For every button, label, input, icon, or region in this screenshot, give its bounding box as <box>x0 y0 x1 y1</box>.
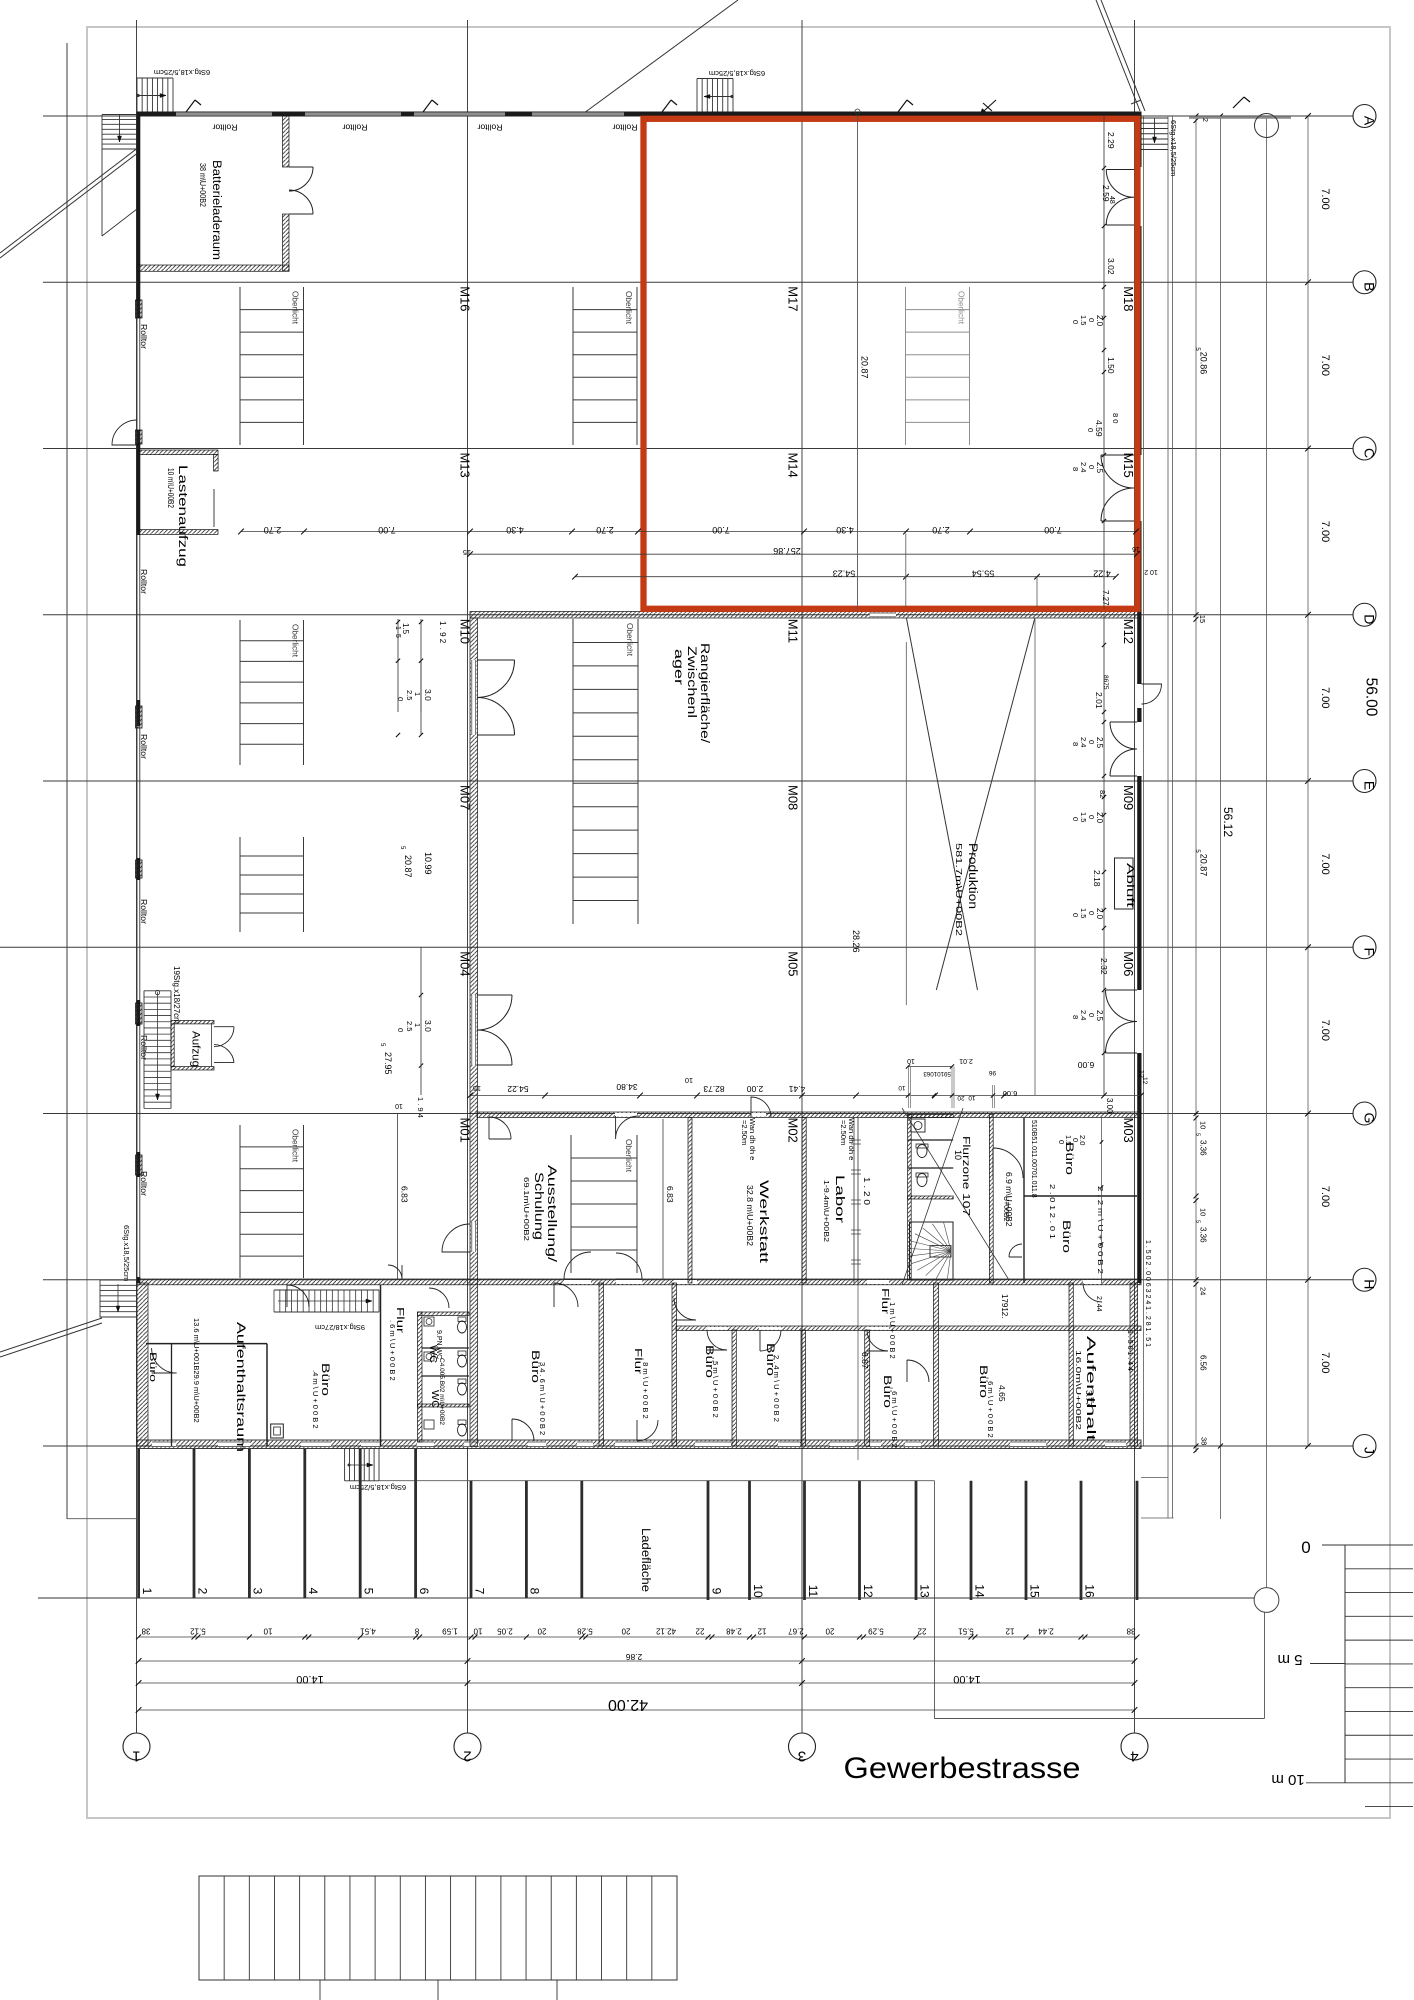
svg-text:24: 24 <box>1199 1287 1208 1295</box>
svg-text:0: 0 <box>396 1028 405 1032</box>
svg-text:14: 14 <box>972 1584 986 1598</box>
svg-text:J: J <box>1362 1447 1378 1454</box>
svg-text:10.99: 10.99 <box>423 852 433 875</box>
svg-text:M07: M07 <box>458 785 473 810</box>
svg-text:6.87: 6.87 <box>860 1352 870 1369</box>
svg-text:7: 7 <box>472 1588 486 1595</box>
svg-text:M10: M10 <box>458 619 473 644</box>
svg-text:6Stg.x18,5/25cm: 6Stg.x18,5/25cm <box>350 1483 406 1492</box>
svg-text:Ausstellung/: Ausstellung/ <box>545 1165 557 1263</box>
svg-text:20.87: 20.87 <box>403 855 413 878</box>
svg-text:20.87: 20.87 <box>860 356 870 379</box>
svg-text:5.29: 5.29 <box>868 1627 884 1636</box>
svg-text:42.00: 42.00 <box>608 1696 648 1713</box>
svg-text:. 5 m \ U + 0 0 B 2: . 5 m \ U + 0 0 B 2 <box>711 1357 720 1418</box>
svg-text:7.00: 7.00 <box>378 525 396 535</box>
svg-text:4.41: 4.41 <box>788 1084 805 1094</box>
svg-text:Abluft: Abluft <box>1124 863 1136 907</box>
svg-text:0: 0 <box>1057 1140 1066 1144</box>
svg-text:2 .44: 2 .44 <box>1095 1296 1102 1312</box>
svg-text:Batterieladeraum: Batterieladeraum <box>210 160 222 260</box>
svg-text:16.0m\U+00B2: 16.0m\U+00B2 <box>1074 1350 1083 1430</box>
svg-text:B: B <box>1362 282 1378 291</box>
svg-text:Rolltor: Rolltor <box>139 1035 148 1060</box>
svg-text:0: 0 <box>1071 320 1080 324</box>
svg-text:0: 0 <box>1086 428 1095 432</box>
svg-text:4.51: 4.51 <box>360 1627 376 1636</box>
svg-text:38 m\U+00B2: 38 m\U+00B2 <box>198 163 207 207</box>
svg-text:38: 38 <box>1200 1437 1209 1445</box>
svg-text:20.87: 20.87 <box>1199 854 1209 877</box>
svg-text:Lastenaufzug: Lastenaufzug <box>176 465 188 567</box>
svg-text:3.77: 3.77 <box>1084 1390 1094 1407</box>
svg-text:20.86: 20.86 <box>1199 352 1209 375</box>
svg-text:7.00: 7.00 <box>712 525 730 535</box>
svg-text:A: A <box>1362 116 1378 126</box>
svg-text:42.12: 42.12 <box>655 1627 676 1636</box>
svg-text:56.00: 56.00 <box>1363 678 1380 717</box>
svg-text:=2.50m: =2.50m <box>839 1120 848 1145</box>
svg-text:Werkstatt: Werkstatt <box>757 1180 769 1264</box>
svg-text:1: 1 <box>132 1748 140 1765</box>
svg-text:3: 3 <box>251 1588 265 1595</box>
svg-text:1.5: 1.5 <box>401 623 410 635</box>
svg-text:Produktion: Produktion <box>966 843 978 909</box>
svg-text:12: 12 <box>1141 1077 1148 1085</box>
svg-text:8: 8 <box>1071 467 1080 471</box>
svg-text:16: 16 <box>1082 1584 1096 1598</box>
svg-text:Rolltor: Rolltor <box>612 123 637 132</box>
svg-text:22: 22 <box>695 1627 704 1636</box>
svg-text:7.00: 7.00 <box>1319 188 1331 209</box>
svg-text:4.30: 4.30 <box>506 525 524 535</box>
svg-text:5 m: 5 m <box>1277 1651 1302 1668</box>
svg-text:Aufenthaltsraum: Aufenthaltsraum <box>234 1322 248 1452</box>
svg-text:Rolltor: Rolltor <box>212 123 237 132</box>
svg-text:3.36: 3.36 <box>1199 1140 1208 1156</box>
svg-text:M14: M14 <box>786 453 801 478</box>
svg-text:U+00B2: U+00B2 <box>1002 1196 1009 1222</box>
svg-text:7.00: 7.00 <box>1319 1186 1331 1207</box>
svg-text:10: 10 <box>751 1584 765 1598</box>
svg-text:1.50: 1.50 <box>1106 357 1116 374</box>
svg-text:8675: 8675 <box>1102 675 1109 690</box>
svg-text:1 . 9 4: 1 . 9 4 <box>416 1097 425 1118</box>
svg-text:Ladefläche: Ladefläche <box>639 1528 651 1592</box>
svg-text:5.12: 5.12 <box>190 1627 206 1636</box>
svg-text:2.18: 2.18 <box>1092 870 1102 887</box>
svg-text:10: 10 <box>473 1627 482 1636</box>
svg-text:20: 20 <box>537 1627 546 1636</box>
svg-text:. 1 m \ U + 0 0 B 2: . 1 m \ U + 0 0 B 2 <box>888 1298 897 1359</box>
svg-text:10: 10 <box>898 1084 906 1091</box>
svg-text:22: 22 <box>917 1627 926 1636</box>
svg-text:2.5: 2.5 <box>405 690 414 700</box>
svg-text:5: 5 <box>394 634 401 638</box>
svg-text:Büro: Büro <box>147 1352 158 1382</box>
svg-text:Oberlicht: Oberlicht <box>624 291 634 325</box>
svg-text:2.70: 2.70 <box>932 525 950 535</box>
svg-text:Schulung: Schulung <box>532 1172 544 1240</box>
svg-text:E: E <box>1362 781 1378 790</box>
svg-text:2.29: 2.29 <box>1106 132 1116 149</box>
svg-text:2: 2 <box>463 1748 471 1765</box>
svg-text:Rolltor: Rolltor <box>139 899 148 924</box>
svg-text:2.67: 2.67 <box>788 1627 804 1636</box>
svg-text:10: 10 <box>1199 1208 1208 1216</box>
svg-text:2 . 4 m \ U + 0 0 B 2: 2 . 4 m \ U + 0 0 B 2 <box>772 1355 781 1422</box>
svg-text:10 2: 10 2 <box>1144 568 1158 575</box>
svg-text:15: 15 <box>463 548 471 557</box>
svg-text:3.0: 3.0 <box>423 689 433 701</box>
svg-text:M03: M03 <box>1121 1118 1136 1143</box>
svg-text:10: 10 <box>263 1627 272 1636</box>
svg-text:10 m\U+00B2: 10 m\U+00B2 <box>166 468 175 508</box>
svg-text:6Stg.x18,5/25cm: 6Stg.x18,5/25cm <box>1169 120 1178 176</box>
svg-text:Rolltor: Rolltor <box>477 123 502 132</box>
svg-text:2.5: 2.5 <box>405 1021 414 1031</box>
svg-text:15: 15 <box>1027 1584 1041 1598</box>
svg-text:1-9.4m\U+00B2: 1-9.4m\U+00B2 <box>822 1180 831 1242</box>
svg-text:Oberlicht: Oberlicht <box>291 291 301 325</box>
svg-text:2: 2 <box>1201 118 1208 122</box>
svg-text:M01: M01 <box>458 1118 473 1143</box>
svg-text:2.00: 2.00 <box>746 1084 763 1094</box>
svg-text:54.23: 54.23 <box>833 569 856 579</box>
svg-text:2.48: 2.48 <box>726 1627 742 1636</box>
svg-text:2.05: 2.05 <box>497 1627 513 1636</box>
svg-text:M13: M13 <box>458 453 473 478</box>
svg-text:34.80: 34.80 <box>616 1082 638 1092</box>
svg-text:2.01: 2.01 <box>1094 692 1104 709</box>
svg-text:Gewerbestrasse: Gewerbestrasse <box>844 1752 1081 1785</box>
svg-text:12: 12 <box>861 1584 875 1598</box>
svg-text:Oberlicht: Oberlicht <box>625 623 635 657</box>
svg-text:14.00: 14.00 <box>296 1673 324 1685</box>
svg-text:.4 m \ U + 0 0 B 2: .4 m \ U + 0 0 B 2 <box>311 1370 320 1429</box>
svg-text:6.00: 6.00 <box>1003 1089 1018 1098</box>
svg-text:1 . 9 2: 1 . 9 2 <box>438 621 447 644</box>
svg-text:Flurzone 107: Flurzone 107 <box>960 1136 972 1216</box>
svg-text:Rolltor: Rolltor <box>139 1171 148 1196</box>
svg-text:F: F <box>1362 947 1378 956</box>
svg-text:WC: WC <box>429 1390 440 1408</box>
svg-text:20: 20 <box>957 1094 965 1101</box>
svg-text:Oberlicht: Oberlicht <box>624 1139 634 1173</box>
svg-text:3.0: 3.0 <box>423 1020 433 1032</box>
svg-text:=2.50m: =2.50m <box>740 1120 749 1145</box>
svg-text:13: 13 <box>917 1584 931 1598</box>
svg-text:M06: M06 <box>1121 951 1136 976</box>
svg-text:. 8 m \ U + 0 0 B 2: . 8 m \ U + 0 0 B 2 <box>641 1358 650 1419</box>
svg-text:19Stg.x18/27cm: 19Stg.x18/27cm <box>172 966 181 1024</box>
svg-text:8: 8 <box>1071 1015 1080 1019</box>
svg-text:1 . 5 0 2 . 0 0 6 3 2 4 1 . 2: 1 . 5 0 2 . 0 0 6 3 2 4 1 . 2 8 1 . 5 1 <box>1144 1240 1151 1347</box>
svg-text:2.01: 2.01 <box>959 1057 973 1064</box>
svg-text:M02: M02 <box>786 1118 801 1143</box>
svg-text:8: 8 <box>414 1627 419 1636</box>
svg-text:7.00: 7.00 <box>1319 687 1331 708</box>
svg-text:3.00: 3.00 <box>1105 1098 1114 1114</box>
svg-text:G: G <box>1362 1113 1378 1124</box>
svg-text:M16: M16 <box>458 286 473 311</box>
svg-text:6Stg.x18,5/25cm: 6Stg.x18,5/25cm <box>122 1225 131 1281</box>
svg-text:20: 20 <box>825 1627 834 1636</box>
svg-text:2 . 2 m \ U + 0 0 B 2: 2 . 2 m \ U + 0 0 B 2 <box>1096 1186 1105 1274</box>
svg-text:8 0: 8 0 <box>1111 413 1120 423</box>
svg-text:5.51: 5.51 <box>958 1627 974 1636</box>
svg-text:M12: M12 <box>1121 619 1136 644</box>
svg-text:. 6 m \ U + 0 0 B 2: . 6 m \ U + 0 0 B 2 <box>388 1320 397 1381</box>
svg-text:38: 38 <box>1126 1627 1135 1636</box>
svg-text:3 4 . 6 m \ U + 0 0 B 2: 3 4 . 6 m \ U + 0 0 B 2 <box>538 1362 547 1435</box>
svg-text:Rolltor: Rolltor <box>139 324 148 349</box>
svg-text:0: 0 <box>1301 1538 1310 1557</box>
svg-text:10: 10 <box>968 1094 976 1101</box>
svg-text:10: 10 <box>953 1150 963 1160</box>
svg-text:38: 38 <box>141 1627 150 1636</box>
svg-text:Labor: Labor <box>833 1175 845 1223</box>
svg-text:3.02: 3.02 <box>1106 258 1116 275</box>
svg-text:7.27: 7.27 <box>1101 590 1110 606</box>
svg-text:32.8 m\U+00B2: 32.8 m\U+00B2 <box>745 1185 754 1247</box>
svg-text:C: C <box>1362 448 1378 458</box>
svg-text:11: 11 <box>806 1585 820 1598</box>
svg-text:14.00: 14.00 <box>953 1673 981 1685</box>
svg-text:2.86: 2.86 <box>625 1652 642 1662</box>
svg-text:M15: M15 <box>1121 453 1136 478</box>
svg-text:17912.: 17912. <box>1000 1294 1009 1318</box>
svg-text:2.32: 2.32 <box>1099 958 1109 975</box>
svg-text:82: 82 <box>1098 790 1107 798</box>
svg-text:Oberlicht: Oberlicht <box>291 1129 301 1163</box>
svg-text:M11: M11 <box>786 619 801 643</box>
svg-text:96: 96 <box>989 1069 997 1076</box>
svg-text:8: 8 <box>1071 742 1080 746</box>
svg-text:6Stg.x18,5/25cm: 6Stg.x18,5/25cm <box>709 69 765 78</box>
svg-text:7.00: 7.00 <box>1319 853 1331 874</box>
svg-text:4: 4 <box>306 1588 320 1595</box>
svg-text:8: 8 <box>528 1588 542 1595</box>
svg-text:9Stg.x18/27cm: 9Stg.x18/27cm <box>315 1323 365 1332</box>
svg-text:M05: M05 <box>786 951 801 976</box>
svg-text:Büro: Büro <box>1060 1220 1072 1253</box>
svg-text:1 . 5 0 1 . 4 4: 1 . 5 0 1 . 4 4 <box>1126 1330 1133 1371</box>
svg-text:10: 10 <box>907 1057 915 1064</box>
svg-text:6.00: 6.00 <box>1077 1060 1094 1070</box>
svg-text:Oberlicht: Oberlicht <box>957 291 967 325</box>
svg-text:12: 12 <box>757 1627 766 1636</box>
svg-text:581.7m\U+00B2: 581.7m\U+00B2 <box>954 843 963 937</box>
svg-text:7.00: 7.00 <box>1319 355 1331 376</box>
svg-text:12: 12 <box>1005 1627 1014 1636</box>
svg-text:5: 5 <box>1195 1220 1201 1223</box>
svg-text:7.00: 7.00 <box>1319 521 1331 542</box>
svg-text:6.56: 6.56 <box>1199 1355 1208 1371</box>
svg-text:2.70: 2.70 <box>264 525 282 535</box>
svg-text:. 6 m \ U + 0 0 B 2: . 6 m \ U + 0 0 B 2 <box>890 1387 899 1448</box>
svg-text:2.44: 2.44 <box>1038 1627 1054 1636</box>
svg-text:Rangierfläche/: Rangierfläche/ <box>698 643 710 744</box>
svg-text:10: 10 <box>395 1102 403 1109</box>
svg-text:257.86: 257.86 <box>773 546 801 556</box>
svg-text:7.00: 7.00 <box>1044 525 1062 535</box>
svg-text:H: H <box>1362 1279 1378 1289</box>
svg-text:Rolltor: Rolltor <box>139 569 148 594</box>
svg-text:6.83: 6.83 <box>665 1186 675 1203</box>
svg-text:15: 15 <box>1198 615 1207 623</box>
svg-text:Zwischenl: Zwischenl <box>685 646 697 718</box>
svg-text:20: 20 <box>621 1627 630 1636</box>
svg-text:M08: M08 <box>786 785 801 810</box>
svg-text:Rolltor: Rolltor <box>139 734 148 759</box>
svg-text:16: 16 <box>1132 545 1140 552</box>
svg-text:55.54: 55.54 <box>972 569 995 579</box>
svg-text:510B51.011.00701.011.8: 510B51.011.00701.011.8 <box>1030 1120 1037 1198</box>
svg-text:2: 2 <box>195 1588 209 1595</box>
svg-text:48: 48 <box>1108 196 1115 204</box>
svg-text:6Stg.x18,5/25cm: 6Stg.x18,5/25cm <box>154 68 210 77</box>
svg-text:M04: M04 <box>458 951 473 976</box>
svg-text:1: 1 <box>140 1588 154 1595</box>
svg-text:0: 0 <box>1071 913 1080 917</box>
svg-text:54.22: 54.22 <box>507 1084 529 1094</box>
svg-text:6.83: 6.83 <box>400 1186 410 1203</box>
svg-text:5: 5 <box>1195 1133 1201 1136</box>
svg-text:M09: M09 <box>1121 785 1136 810</box>
svg-text:Rolltor: Rolltor <box>342 123 367 132</box>
svg-text:D: D <box>1362 614 1378 624</box>
svg-text:82.73: 82.73 <box>703 1084 725 1094</box>
svg-text:69.1m\U+00B2: 69.1m\U+00B2 <box>522 1177 531 1241</box>
svg-text:2 . 0 1 2 . 0 1: 2 . 0 1 2 . 0 1 <box>1048 1184 1057 1239</box>
svg-text:13.6 m\U+001B29.9 m\U+00B2: 13.6 m\U+001B29.9 m\U+00B2 <box>192 1318 201 1423</box>
svg-text:2.70: 2.70 <box>596 525 614 535</box>
svg-text:27.95: 27.95 <box>383 1052 393 1075</box>
svg-text:56.12: 56.12 <box>1221 807 1235 837</box>
svg-text:4.30: 4.30 <box>836 525 854 535</box>
svg-text:. 6 m \ U + 0 0 B 2: . 6 m \ U + 0 0 B 2 <box>986 1377 995 1438</box>
svg-text:1 . 2 0: 1 . 2 0 <box>862 1177 871 1206</box>
svg-text:6: 6 <box>417 1588 431 1595</box>
svg-text:3: 3 <box>798 1748 806 1765</box>
svg-text:1.59: 1.59 <box>442 1627 458 1636</box>
svg-text:4: 4 <box>1130 1748 1138 1765</box>
svg-text:15: 15 <box>473 1084 481 1093</box>
svg-text:9: 9 <box>709 1588 723 1595</box>
svg-text:3.36: 3.36 <box>1199 1227 1208 1243</box>
svg-text:5.28: 5.28 <box>577 1627 593 1636</box>
svg-text:.59101063: .59101063 <box>923 1070 953 1077</box>
svg-text:4.22: 4.22 <box>1093 569 1111 579</box>
svg-text:10 m: 10 m <box>1271 1771 1304 1788</box>
svg-text:7.00: 7.00 <box>1319 1020 1331 1041</box>
svg-text:0: 0 <box>396 697 405 701</box>
svg-text:9.PN.WC: 9.PN.WC <box>435 1330 442 1359</box>
svg-text:0: 0 <box>1071 817 1080 821</box>
svg-text:Oberlicht: Oberlicht <box>291 624 301 658</box>
svg-text:1: 1 <box>394 626 401 630</box>
svg-text:10: 10 <box>1199 1121 1208 1129</box>
svg-text:Aufzug: Aufzug <box>190 1031 202 1067</box>
svg-text:M18: M18 <box>1121 286 1136 311</box>
svg-text:M17: M17 <box>786 286 801 311</box>
svg-text:4.65: 4.65 <box>997 1385 1007 1402</box>
svg-text:5: 5 <box>362 1588 376 1595</box>
svg-text:7.00: 7.00 <box>1319 1352 1331 1373</box>
svg-text:ager: ager <box>672 649 684 685</box>
svg-text:28.26: 28.26 <box>851 930 861 953</box>
svg-text:10: 10 <box>685 1076 693 1085</box>
svg-text:Büro: Büro <box>1063 1142 1075 1175</box>
